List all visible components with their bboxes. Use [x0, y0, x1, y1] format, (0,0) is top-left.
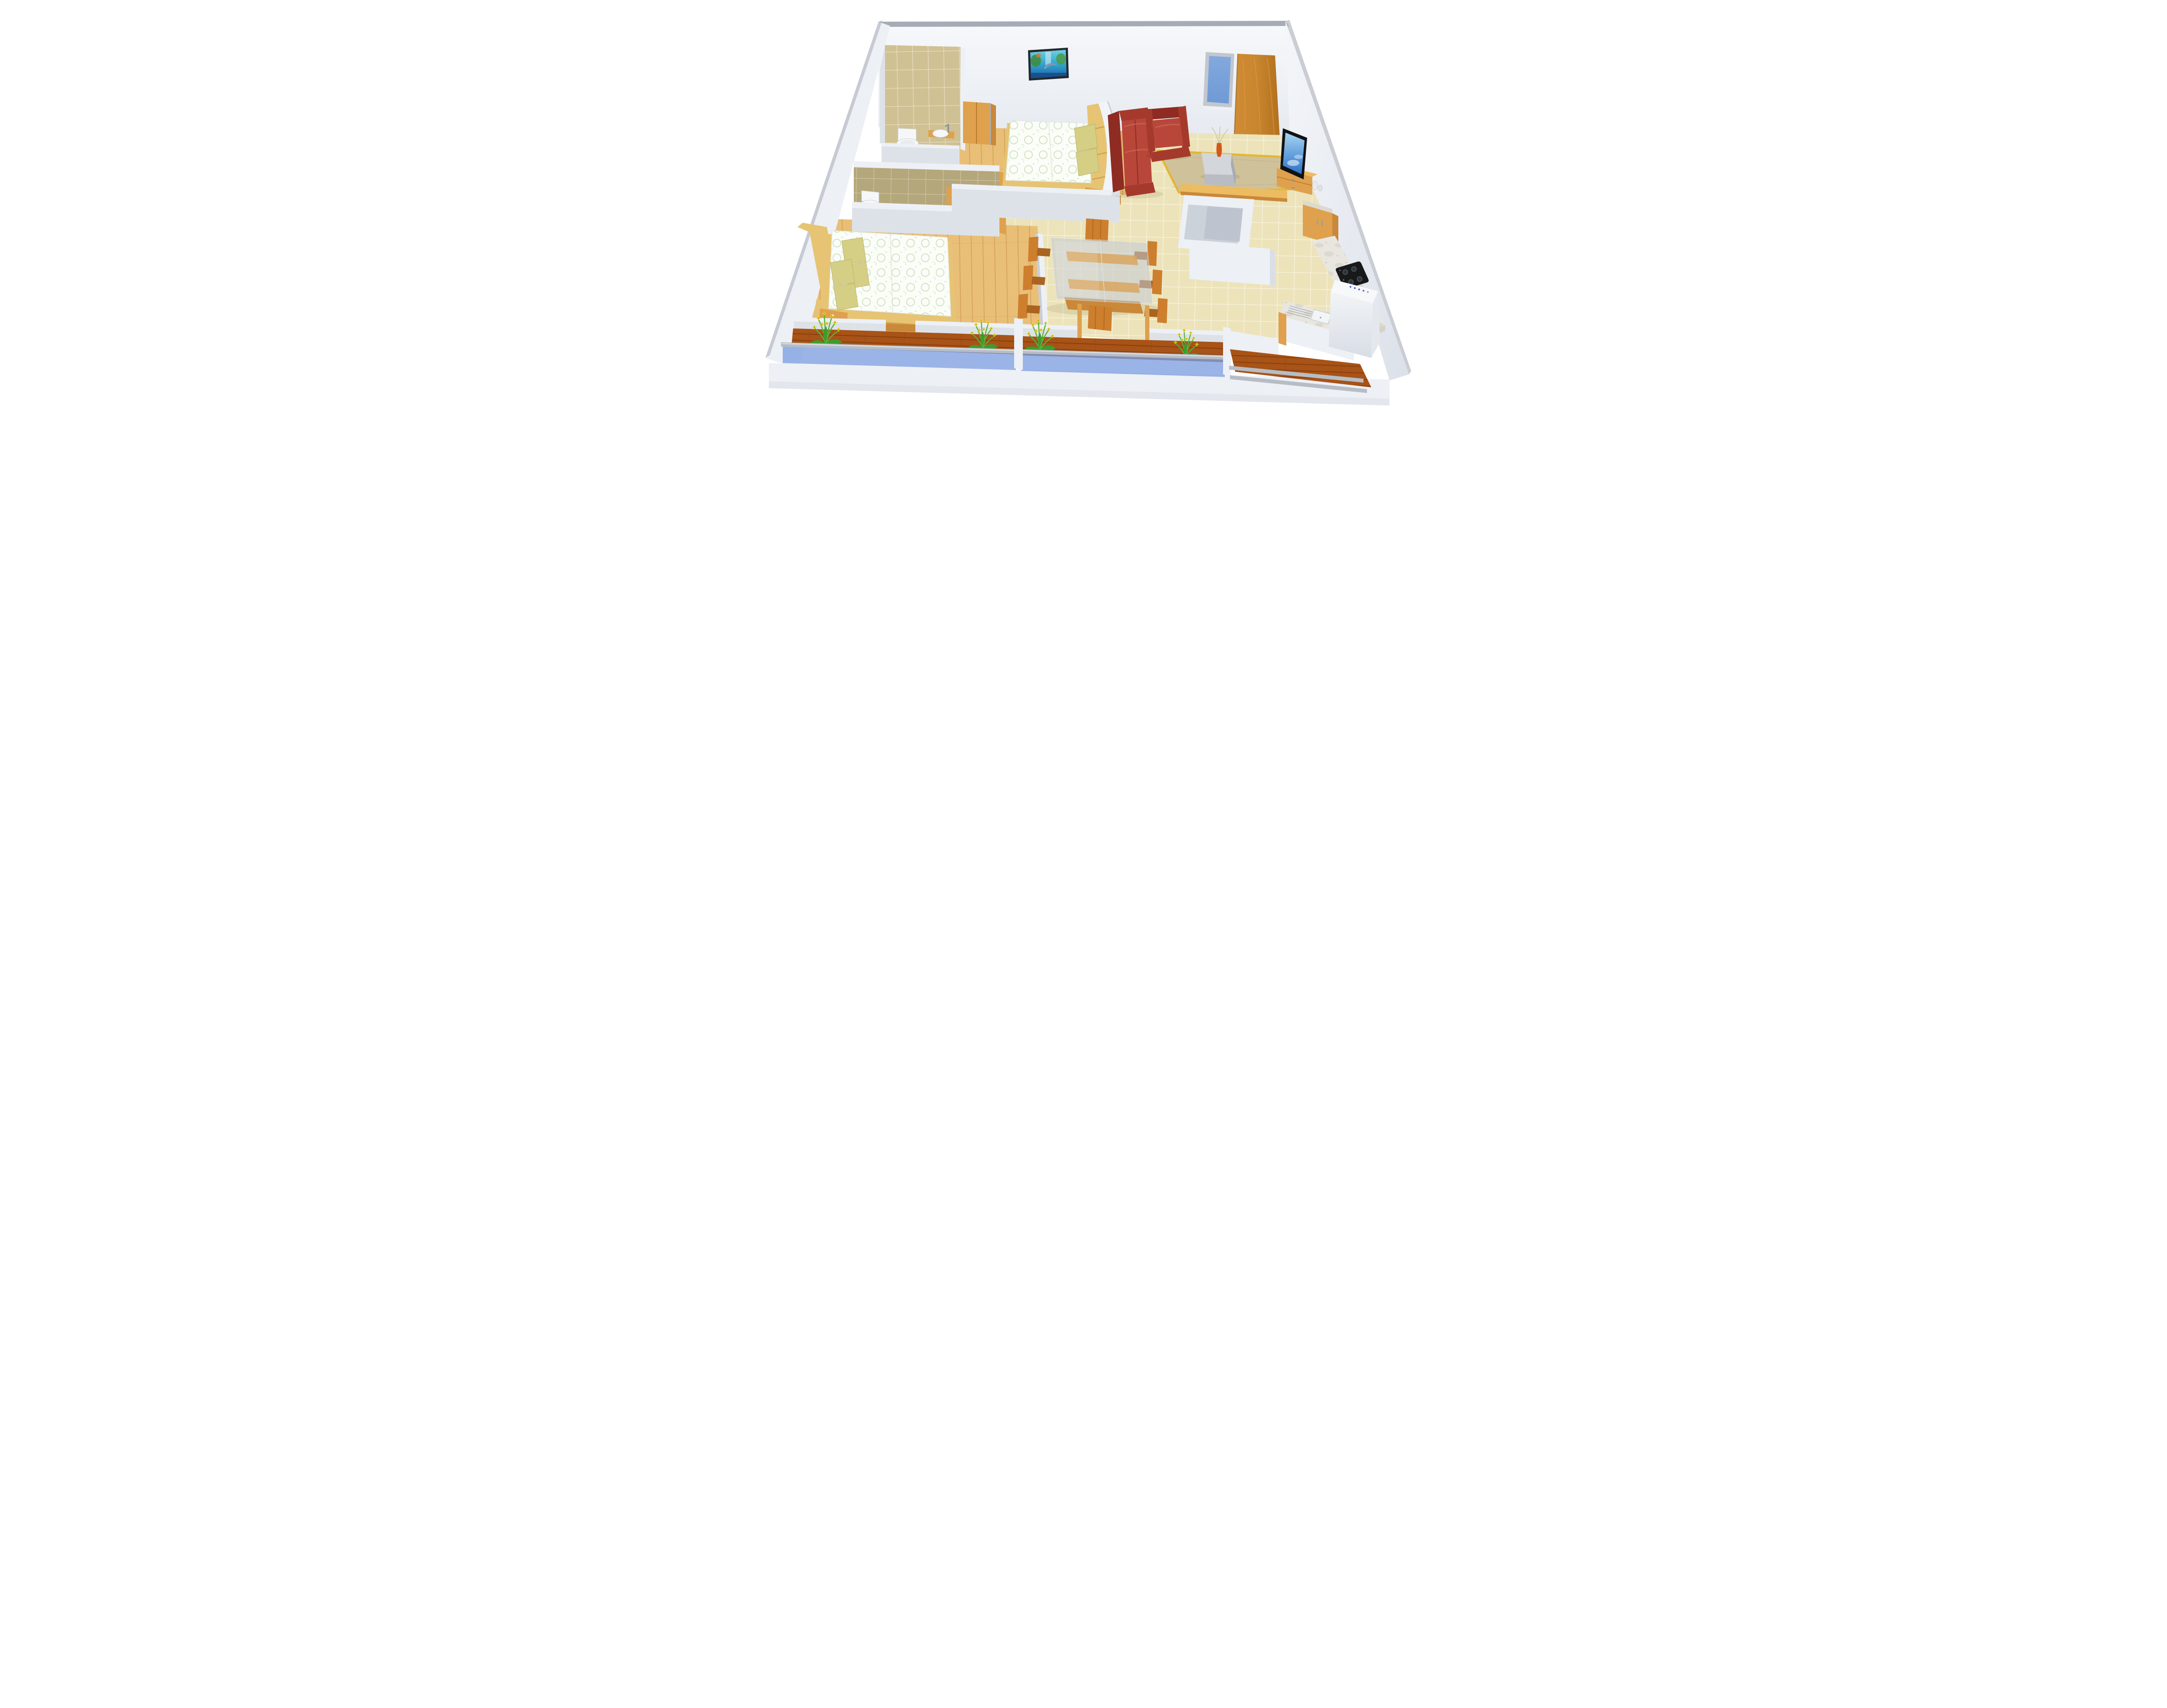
bathroom-1 — [880, 45, 965, 172]
wall-art-dolphin-waterfall — [1028, 48, 1069, 81]
window — [1202, 52, 1234, 111]
floorplan-3d-render — [756, 0, 1411, 427]
wardrobe-cabinet — [963, 101, 996, 146]
entry-door — [1234, 54, 1280, 139]
balcony-door-threshold — [886, 324, 915, 332]
balcony-divider-wall — [1014, 318, 1023, 370]
bed-1-pillow — [1076, 148, 1099, 176]
dining-chair — [1088, 305, 1112, 331]
bed-2-pillow — [830, 259, 855, 286]
bed-2-pillow — [834, 283, 858, 310]
red-armchair — [1145, 106, 1191, 162]
dining-chair — [1085, 218, 1109, 242]
washing-machine — [1329, 280, 1380, 358]
back-wall-cap — [879, 21, 1289, 27]
kitchen-base-cabinet — [1279, 312, 1286, 346]
glass-dining-table — [1051, 237, 1153, 304]
bed-1-pillow — [1074, 124, 1097, 152]
floorplan-stage — [756, 0, 1411, 427]
